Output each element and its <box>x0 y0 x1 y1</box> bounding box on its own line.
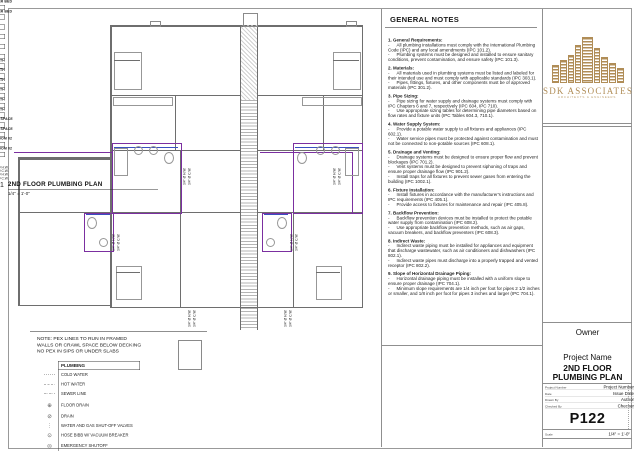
legend-row: ⊙HOSE BIBB W/ VACUUM BREAKER <box>59 431 141 441</box>
view-scale: 1/4" = 1'-0" <box>8 191 158 196</box>
room-label: BATH <box>0 69 320 79</box>
legend-label: WATER AND GAS SHUT-OFF VALVES <box>58 424 133 429</box>
room-label: BEDROOM 02 <box>0 137 320 147</box>
legend-row: ⊕FLOOR DRAIN <box>59 399 141 412</box>
legend-label: HOSE BIBB W/ VACUUM BREAKER <box>58 433 128 438</box>
room-label-text: BEDROOM 02 <box>0 147 320 151</box>
room-label: BATH <box>0 88 320 98</box>
pipe-size-cw: 3/4" Ø C.W. <box>289 292 293 327</box>
notes-panel-bottom-border <box>382 345 542 346</box>
legend-title: PLUMBING <box>58 361 140 370</box>
room-label-text: BATH <box>0 88 320 92</box>
title-block-field: Checked ByChecker <box>545 403 634 409</box>
pipe-size-cw: 3/4" Ø C.W. <box>338 150 342 185</box>
room-label: BATH <box>0 78 320 88</box>
pipe-size-label-vertical: 3/4" Ø H.W.3/4" Ø C.W. <box>290 216 299 251</box>
firm-logo: SDK ASSOCIATES ARCHITECTS & ENGINEERS <box>543 37 632 102</box>
pipe-size-cw: 3/4" Ø C.W. <box>295 216 299 251</box>
room-label-text: BEDROOM 02 <box>0 137 320 141</box>
room-label: BATH <box>0 108 320 118</box>
pipe-size-hw: 3/4" Ø H.W. <box>333 150 337 185</box>
view-number: 1 <box>0 181 4 189</box>
note-bullet: -Indirect waste pipes must discharge int… <box>388 258 540 268</box>
room-label: BATH <box>0 59 320 69</box>
pipe-size-hw: 3/4" Ø H.W. <box>188 292 192 327</box>
room-label-text: MASTER BED <box>0 10 320 14</box>
legend-row: ⊘DRAIN <box>59 412 141 422</box>
tb-divider <box>543 322 632 323</box>
room-label-text: LIVING SPACE <box>0 127 320 131</box>
pipe-size-hw: 3/4" Ø H.W. <box>112 216 116 251</box>
room-label: LIVING SPACE <box>0 118 320 128</box>
pipe-size-label-vertical: 3/4" Ø H.W.3/4" Ø C.W. <box>188 292 197 327</box>
room-label: BATH <box>0 98 320 108</box>
field-label: Drawn By <box>545 399 558 403</box>
cold-water-line <box>41 375 58 376</box>
room-label: WALK-IN CLOSET <box>0 29 320 39</box>
firm-name: SDK ASSOCIATES <box>543 86 632 96</box>
drain-symbol: ⊘ <box>41 413 58 420</box>
sheet-number: P122 <box>543 411 632 427</box>
note-bullet: -Pipes, fittings, fixtures, and other co… <box>388 81 540 91</box>
room-label-text: LIVING SPACE <box>0 118 320 122</box>
title-block: SDK ASSOCIATES ARCHITECTS & ENGINEERS Ow… <box>542 9 632 447</box>
room-label-text: BATH <box>0 69 320 73</box>
legend-row: SEWER LINE <box>59 389 141 399</box>
owner-label: Owner <box>543 328 632 337</box>
note-bullet: -Install traps for all fixtures to preve… <box>388 174 540 184</box>
room-label: LIVING SPACE <box>0 127 320 137</box>
room-label: WALK-IN CLOSET <box>0 20 320 30</box>
sewer-line <box>41 394 58 395</box>
room-label-text: BATH <box>0 98 320 102</box>
note-bullet: -Vent systems must be designed to preven… <box>388 165 540 175</box>
pipe-size-cw: 3/4" Ø C.W. <box>188 150 192 185</box>
note-bullet: -Water service pipes must be protected a… <box>388 137 540 147</box>
legend-label: DRAIN <box>58 414 74 419</box>
scale-label: Scale <box>545 433 553 437</box>
tb-divider <box>543 438 632 439</box>
pex-note-text: NOTE: PEX LINES TO RUN IN FRAMED WALLS O… <box>37 336 143 355</box>
room-label: WALK-IN CLOSET <box>0 49 320 59</box>
pipe-size-cw: 3/4" Ø C.W. <box>0 177 320 181</box>
pipe-size-cw: 3/4" Ø C.W. <box>193 292 197 327</box>
note-bullet: -Indirect waste piping must be installed… <box>388 244 540 259</box>
legend-row: ◎EMERGENCY SHUTOFF <box>59 440 141 451</box>
field-label: Checked By <box>545 405 562 409</box>
pipe-size-label-vertical: 3/4" Ø H.W.3/4" Ø C.W. <box>284 292 293 327</box>
note-bullet: -Horizontal drainage piping must be inst… <box>388 277 540 287</box>
room-label: MASTER BED <box>0 0 320 10</box>
room-label-text: BATH <box>0 59 320 63</box>
note-bullet: -Provide access to fixtures for maintena… <box>388 202 540 207</box>
general-notes-title: GENERAL NOTES <box>390 15 459 24</box>
sheet-title: 2ND FLOOR PLUMBING PLAN <box>547 364 628 383</box>
field-value: Checker <box>618 403 634 408</box>
scale-value: 1/4" = 1'-0" <box>609 432 630 437</box>
field-value: Issue Date <box>613 391 634 396</box>
emergency-shutoff-symbol: ◎ <box>41 442 58 449</box>
tb-divider <box>543 126 632 127</box>
field-label: Date <box>545 392 552 396</box>
legend-label: SEWER LINE <box>58 392 86 397</box>
pipe-size-hw: 3/4" Ø H.W. <box>290 216 294 251</box>
firm-tagline: ARCHITECTS & ENGINEERS <box>558 96 616 99</box>
floor-drain-symbol: ⊕ <box>41 402 58 409</box>
hot-water-line <box>41 384 58 385</box>
legend-label: COLD WATER <box>58 373 88 378</box>
legend-row: ⋮WATER AND GAS SHUT-OFF VALVES <box>59 421 141 431</box>
room-label: MASTER BED <box>0 10 320 20</box>
pipe-size-label: 3/4" Ø H.W.3/4" Ø C.W. <box>0 166 320 173</box>
note-bullet: -Minimum slope requirements are 1/4 inch… <box>388 286 540 296</box>
legend-label: HOT WATER <box>58 382 85 387</box>
note-bullet: -Use appropriate backflow prevention met… <box>388 226 540 236</box>
pipe-size-label: 3/4" Ø H.W.3/4" Ø C.W. <box>0 173 320 180</box>
view-title-col: 2ND FLOOR PLUMBING PLAN1/4" = 1'-0" <box>8 181 158 197</box>
notes-panel-left-border <box>381 9 382 447</box>
pipe-size-hw: 3/4" Ø H.W. <box>284 292 288 327</box>
room-label: BEDROOM 02 <box>0 147 320 157</box>
room-label-text: BATH <box>0 108 320 112</box>
pipe-size-cw: 3/4" Ø C.W. <box>117 216 121 251</box>
project-name-label: Project Name <box>543 353 632 362</box>
note-bullet: -Plumbing systems must be designed and i… <box>388 53 540 63</box>
drawing-sheet: MASTER BEDMASTER BEDWALK-IN CLOSETWALK-I… <box>0 0 640 457</box>
field-label: Project Number <box>545 386 566 390</box>
hose-bibb-symbol: ⊙ <box>41 432 58 439</box>
legend-row: COLD WATER <box>59 370 141 380</box>
pipe-size-label-vertical: 3/4" Ø H.W.3/4" Ø C.W. <box>112 216 121 251</box>
note-bullet: -Install fixtures in accordance with the… <box>388 193 540 203</box>
legend-row: HOT WATER <box>59 380 141 390</box>
plan-area-divider <box>30 331 207 332</box>
print-stamp <box>628 387 630 429</box>
scale-row: Scale 1/4" = 1'-0" <box>545 430 630 443</box>
pipe-size-hw: 3/4" Ø H.W. <box>183 150 187 185</box>
room-label-text: MASTER BED <box>0 0 320 4</box>
shutoff-valve-symbol: ⋮ <box>41 423 58 430</box>
room-label: WALK-IN CLOSET <box>0 39 320 49</box>
pipe-size-label-vertical: 3/4" Ø H.W.3/4" Ø C.W. <box>183 150 192 185</box>
notes-title-underline <box>385 27 537 28</box>
room-label-text: BATH <box>0 78 320 82</box>
sdk-buildings-icon <box>543 37 632 83</box>
plumbing-legend: PLUMBING COLD WATERHOT WATERSEWER LINE⊕F… <box>40 361 240 457</box>
legend-label: EMERGENCY SHUTOFF <box>58 443 108 448</box>
legend-label: FLOOR DRAIN <box>58 403 89 408</box>
view-title: 2ND FLOOR PLUMBING PLAN <box>8 181 158 190</box>
note-bullet: -Use appropriate sizing tables for deter… <box>388 109 540 119</box>
pipe-size-label-vertical: 3/4" Ø H.W.3/4" Ø C.W. <box>333 150 342 185</box>
tb-divider <box>543 123 632 124</box>
